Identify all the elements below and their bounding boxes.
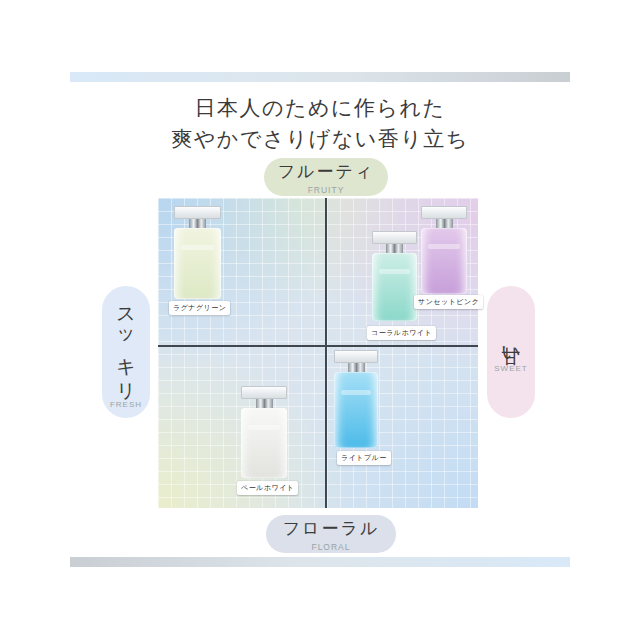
bottle-body	[372, 253, 417, 321]
product-name-tag: コーラルホワイト	[367, 326, 436, 340]
axis-sublabel-sweet: SWEET	[494, 364, 527, 373]
product-name-tag: ラグナグリーン	[169, 301, 230, 315]
bottom-gradient-bar	[70, 557, 570, 567]
page-title: 日本人のために作られた 爽やかでさりげない香り立ち	[0, 92, 640, 154]
bottle-pale-white	[241, 386, 287, 478]
bottle-sunset-pink	[421, 206, 467, 294]
product-name-tag: ライトブルー	[337, 451, 391, 465]
axis-sublabel-fruity: FRUITY	[308, 185, 345, 195]
bottle-cap	[174, 206, 221, 219]
product-name-tag: ペールホワイト	[237, 481, 298, 495]
bottle-sprayer	[256, 398, 273, 408]
axis-sublabel-fresh: FRESH	[110, 400, 142, 409]
product-infographic: 日本人のために作られた 爽やかでさりげない香り立ち フルーティ FRUITY ス…	[0, 0, 640, 640]
bottle-sprayer	[386, 243, 403, 253]
title-line-1: 日本人のために作られた	[0, 92, 640, 123]
bottle-body	[334, 372, 378, 448]
axis-badge-floral: フローラル FLORAL	[266, 515, 396, 553]
bottle-cap	[241, 386, 287, 399]
axis-badge-sweet: 甘い SWEET	[487, 286, 535, 418]
bottle-cap	[372, 231, 417, 244]
bottle-laguna-green	[174, 206, 221, 299]
axis-label-fruity: フルーティ	[278, 160, 375, 183]
title-line-2: 爽やかでさりげない香り立ち	[0, 123, 640, 154]
bottle-sprayer	[436, 218, 453, 228]
bottle-sprayer	[189, 218, 206, 228]
axis-sublabel-floral: FLORAL	[311, 542, 350, 552]
bottle-body	[174, 228, 221, 299]
bottle-cap	[421, 206, 467, 219]
bottle-body	[421, 228, 467, 294]
bottle-cap	[334, 350, 378, 363]
top-gradient-bar	[70, 72, 570, 82]
axis-label-fresh: スッキリ	[113, 295, 139, 394]
axis-badge-fruity: フルーティ FRUITY	[264, 158, 388, 196]
bottle-body	[241, 408, 287, 478]
axis-label-floral: フローラル	[283, 517, 380, 540]
bottle-light-blue	[334, 350, 378, 448]
axis-badge-fresh: スッキリ FRESH	[102, 286, 150, 418]
horizontal-axis-line	[158, 345, 478, 347]
axis-label-sweet: 甘い	[498, 331, 524, 359]
product-name-tag: サンセットピンク	[414, 295, 483, 309]
vertical-axis-line	[325, 198, 327, 508]
bottle-sprayer	[348, 362, 365, 372]
bottle-coral-white	[372, 231, 417, 321]
